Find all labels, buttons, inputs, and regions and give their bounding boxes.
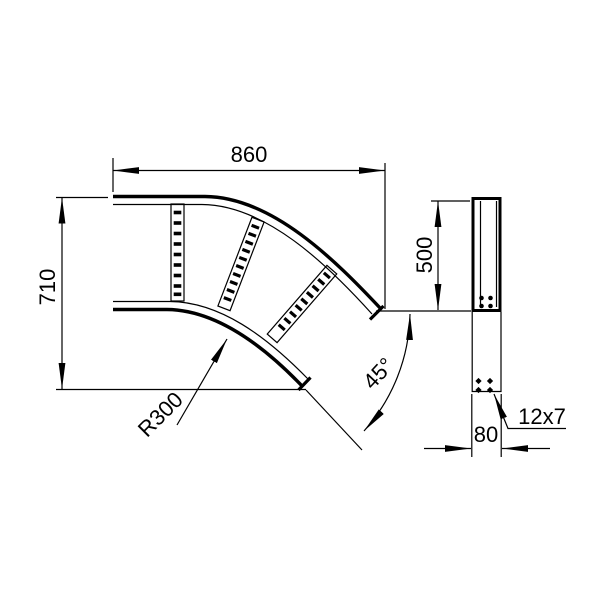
dimension-side-length: 500 (412, 201, 470, 310)
angle-extension-line (306, 390, 362, 450)
coupler-holes-lower (475, 378, 493, 393)
dimension-bend-radius: R300 (133, 339, 227, 442)
dimension-bend-angle: 45° (306, 311, 471, 450)
dim-width-label: 860 (231, 142, 268, 167)
rung-slots (223, 224, 259, 302)
plan-view (113, 197, 384, 391)
dim-slot-size-label: 12x7 (518, 404, 566, 429)
side-view-bend-section (472, 312, 501, 392)
rung-3 (267, 265, 337, 342)
inner-rail (113, 302, 311, 391)
technical-drawing-page: 860 710 R300 45° (0, 0, 600, 600)
dim-height-label: 710 (35, 269, 60, 306)
side-view (472, 199, 501, 394)
dim-side-width-label: 80 (474, 422, 498, 447)
dim-radius-label: R300 (133, 387, 188, 442)
dimension-slot-size: 12x7 (494, 394, 566, 429)
dim-side-length-label: 500 (412, 237, 437, 274)
technical-drawing-canvas: 860 710 R300 45° (0, 0, 600, 600)
rung-slots (174, 211, 182, 296)
outer-rail-end-cut (370, 306, 384, 320)
rung-slots (278, 272, 331, 332)
rung-1 (171, 204, 184, 301)
leader-line (177, 339, 227, 425)
rung-2 (218, 217, 264, 310)
